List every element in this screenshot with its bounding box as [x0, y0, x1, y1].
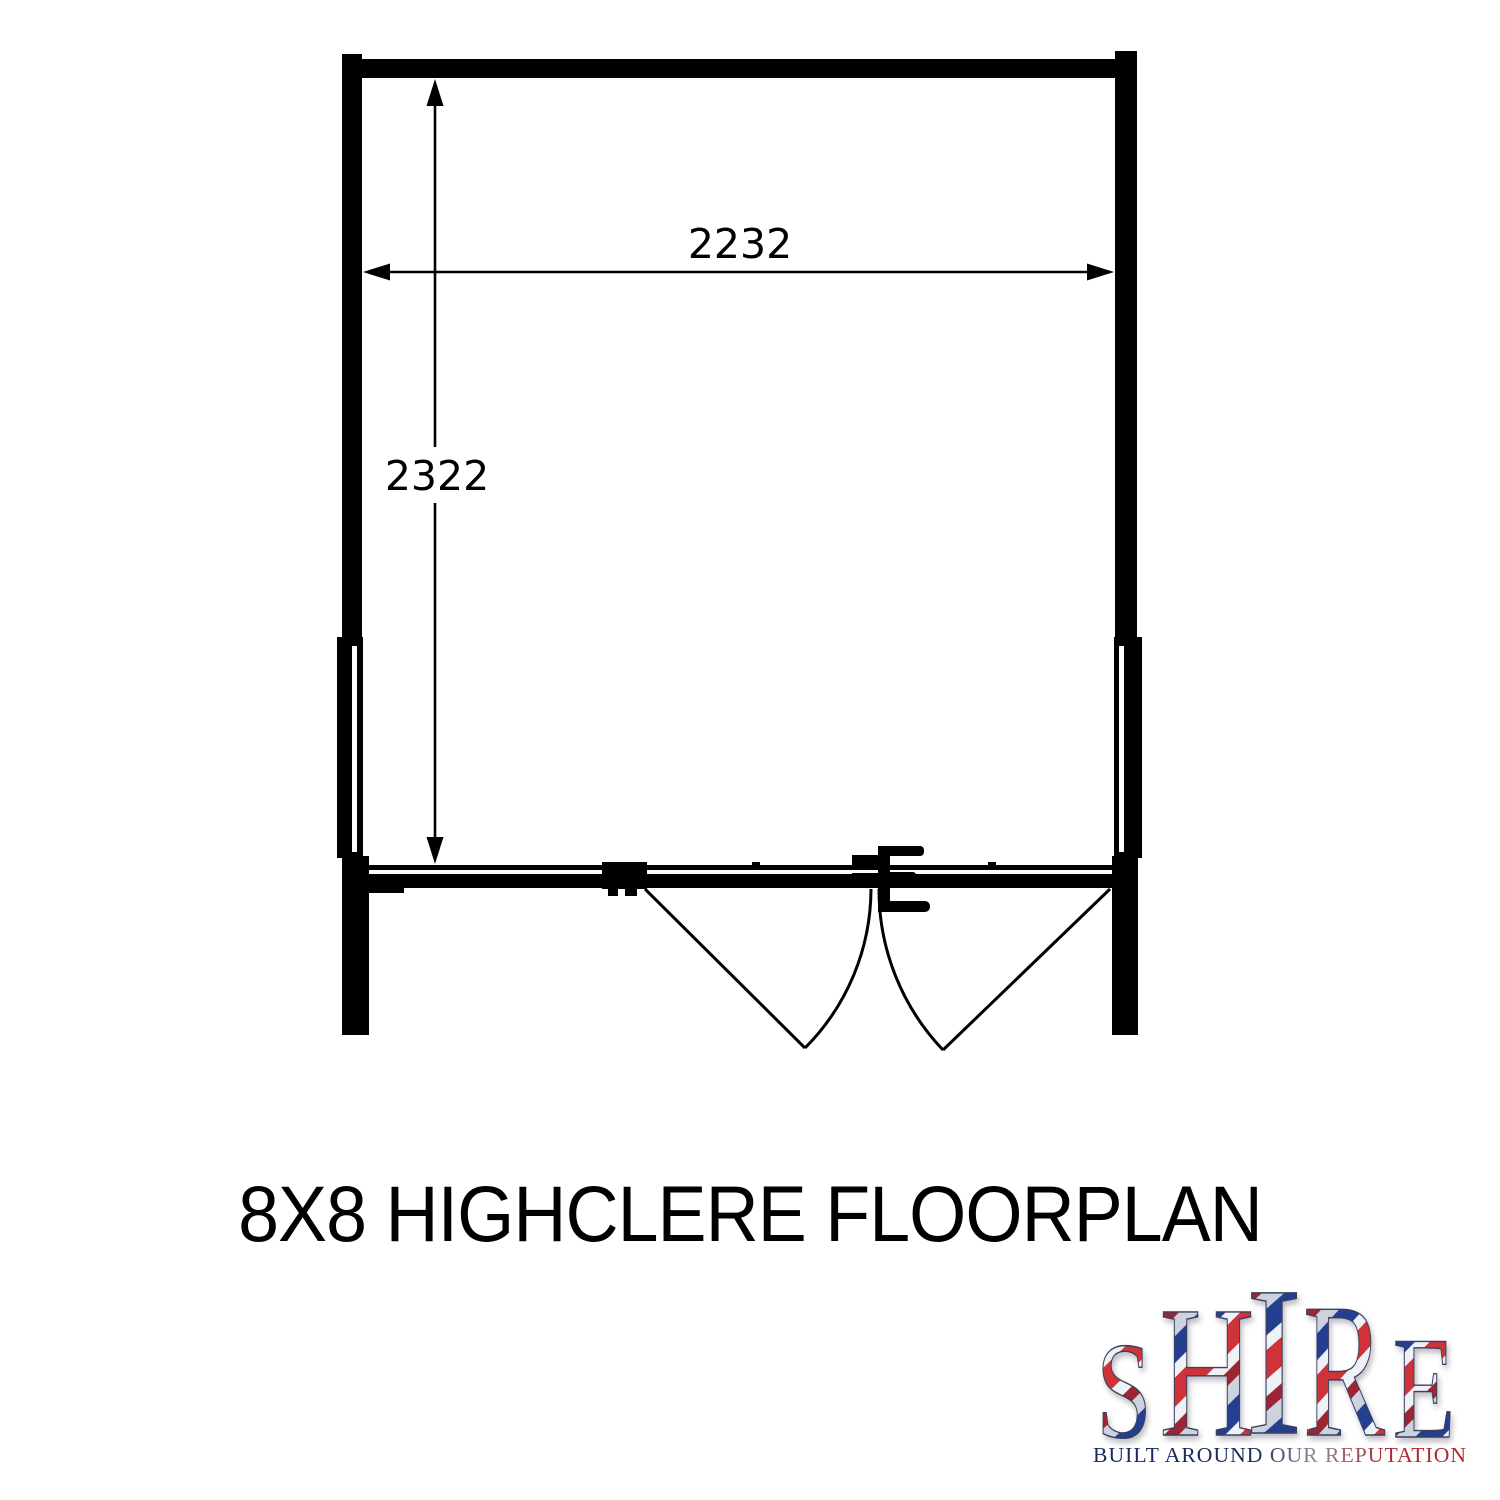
- latch-stub-lower: [852, 873, 878, 888]
- dim-height-arrow-bottom: [427, 837, 444, 864]
- dim-width-arrow-right: [1087, 264, 1114, 281]
- window-right-glass: [1119, 646, 1124, 852]
- logo-tagline: BUILT AROUND OUR REPUTATION: [1093, 1443, 1467, 1467]
- door-right-leaf: [943, 889, 1110, 1050]
- dimensions-group: 2232 2322: [363, 79, 1114, 864]
- window-left-frame: [337, 637, 363, 858]
- walls-group: [337, 51, 1142, 1035]
- threshold-dot-left: [752, 862, 760, 868]
- threshold-left-foot: [362, 884, 404, 893]
- wall-top: [342, 59, 1137, 78]
- dim-width-value: 2232: [688, 220, 792, 268]
- latch-prong-mid: [886, 872, 916, 882]
- window-right-frame: [1114, 637, 1142, 858]
- post-bottom-right: [1112, 856, 1138, 1035]
- dim-height-value: 2322: [385, 452, 489, 500]
- door-hinge-left-foot-b: [625, 888, 637, 896]
- wall-left-upper: [342, 54, 362, 638]
- doors-group: [645, 889, 1110, 1050]
- latch-prong-top: [886, 846, 924, 856]
- door-left-swing-arc: [805, 889, 871, 1048]
- door-hinge-left-block: [602, 862, 647, 889]
- page-title: 8X8 HIGHCLERE FLOORPLAN: [53, 1168, 1448, 1260]
- shire-logo: S H I R E BUILT AROUND OUR REPUTATION: [1060, 1250, 1500, 1490]
- latch-prong-bottom: [886, 901, 930, 912]
- threshold-top-line: [362, 865, 1112, 870]
- dim-width-arrow-left: [363, 264, 390, 281]
- wall-right-upper: [1115, 51, 1137, 638]
- dim-height-arrow-top: [427, 79, 444, 106]
- threshold-bar: [362, 874, 1112, 888]
- door-right-swing-arc: [879, 889, 943, 1050]
- threshold-dot-right: [988, 862, 996, 868]
- latch-stub-upper: [852, 855, 878, 868]
- door-left-leaf: [645, 889, 805, 1048]
- window-left-glass: [352, 646, 357, 852]
- door-hinge-left-foot-a: [608, 888, 618, 896]
- floorplan-page: 2232 2322 8X8 HIGHCLERE FLOORPLAN: [0, 0, 1500, 1500]
